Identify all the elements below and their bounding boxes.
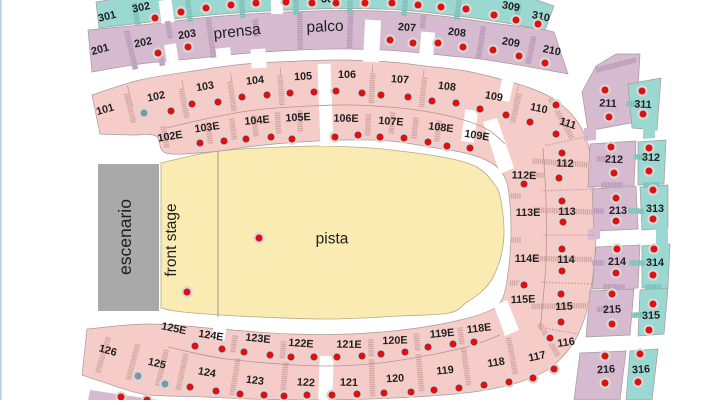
svg-text:105E: 105E: [285, 111, 311, 124]
svg-text:front stage: front stage: [163, 203, 180, 276]
svg-text:122: 122: [297, 376, 316, 389]
svg-text:112: 112: [556, 157, 574, 170]
svg-text:escenario: escenario: [115, 199, 135, 275]
svg-text:211: 211: [599, 97, 617, 110]
svg-text:114: 114: [557, 254, 574, 266]
svg-text:113: 113: [558, 206, 575, 218]
svg-text:207: 207: [398, 21, 417, 34]
svg-text:121: 121: [340, 377, 358, 389]
svg-text:120E: 120E: [382, 334, 408, 347]
svg-text:315: 315: [642, 309, 660, 322]
svg-text:104E: 104E: [244, 114, 270, 128]
svg-text:108: 108: [437, 80, 456, 94]
svg-text:208: 208: [447, 26, 466, 40]
svg-text:106: 106: [338, 69, 356, 81]
svg-text:116: 116: [557, 336, 576, 350]
svg-text:213: 213: [609, 205, 627, 217]
svg-text:106E: 106E: [333, 113, 358, 125]
svg-text:115E: 115E: [511, 293, 536, 306]
svg-text:122E: 122E: [288, 337, 314, 351]
svg-text:121E: 121E: [336, 339, 361, 351]
svg-text:314: 314: [646, 257, 664, 269]
svg-text:316: 316: [632, 363, 651, 376]
svg-text:120: 120: [386, 372, 405, 385]
svg-text:105: 105: [294, 70, 313, 83]
svg-text:313: 313: [646, 203, 664, 215]
svg-text:104: 104: [245, 74, 264, 88]
svg-text:119: 119: [436, 364, 455, 378]
svg-text:123: 123: [245, 374, 264, 388]
svg-text:pista: pista: [316, 230, 349, 247]
svg-text:312: 312: [642, 151, 660, 164]
svg-text:114E: 114E: [515, 253, 540, 265]
svg-text:115: 115: [555, 300, 573, 313]
svg-text:107: 107: [391, 73, 410, 86]
svg-text:113E: 113E: [516, 207, 541, 219]
svg-text:palco: palco: [306, 18, 344, 36]
svg-text:214: 214: [608, 256, 626, 268]
svg-text:215: 215: [603, 303, 621, 316]
svg-text:216: 216: [597, 363, 616, 376]
svg-text:107E: 107E: [378, 115, 404, 129]
svg-text:212: 212: [605, 153, 623, 166]
